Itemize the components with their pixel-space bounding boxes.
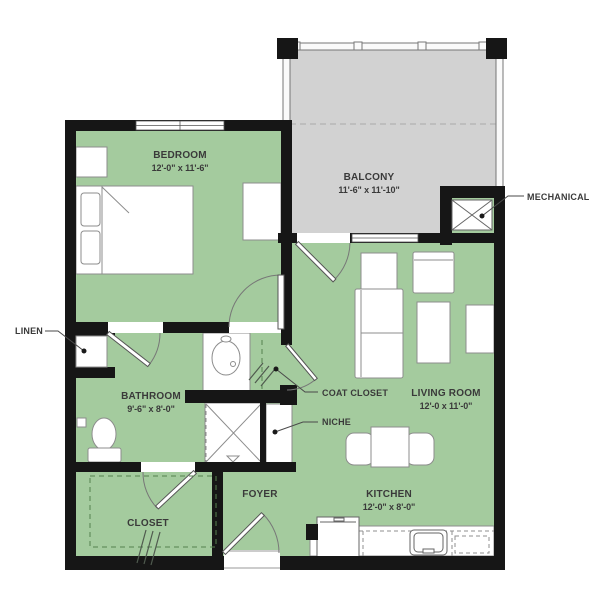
living-room-dims: 12'-0 x 11'-0": [420, 401, 473, 411]
coat-closet-callout-label: COAT CLOSET: [322, 388, 388, 398]
balcony-dims: 11'-6" x 11'-10": [338, 185, 399, 195]
leader-dot: [480, 214, 485, 219]
range-symbol: [317, 517, 359, 558]
niche-shelf-symbol: [266, 404, 292, 463]
rail-post-icon: [418, 42, 426, 50]
balcony-label: BALCONY: [344, 172, 395, 183]
sofa-symbol: [355, 289, 403, 378]
living-room-label: LIVING ROOM: [411, 388, 480, 399]
faucet-icon: [221, 336, 231, 342]
tp-holder-icon: [77, 418, 86, 427]
balcony-corner-post: [486, 38, 507, 59]
media-console-symbol: [466, 305, 494, 353]
shower-symbol: [205, 403, 262, 463]
balcony-railing-top: [297, 43, 487, 50]
wall-segment: [440, 186, 452, 245]
bed-symbol: [76, 186, 193, 274]
floor-plan-drawing: BEDROOM 12'-0" x 11'-6" BALCONY 11'-6" x…: [0, 0, 600, 606]
kitchen-label: KITCHEN: [366, 489, 412, 500]
chair-icon: [346, 433, 374, 465]
door-opening: [297, 233, 350, 243]
bathroom-label: BATHROOM: [121, 391, 181, 402]
drain-icon: [231, 362, 236, 367]
rail-post-icon: [354, 42, 362, 50]
leader-dot: [273, 430, 278, 435]
pillow-icon: [81, 231, 100, 264]
wall-segment: [185, 390, 296, 403]
bedroom-window: [136, 121, 224, 130]
balcony-sliding-door: [352, 234, 418, 242]
kitchen-dims: 12'-0" x 8'-0": [363, 502, 415, 512]
mechanical-equipment-symbol: [452, 200, 492, 230]
sink-symbol: [410, 530, 447, 555]
wall-segment: [280, 385, 297, 405]
foyer-label: FOYER: [242, 489, 278, 500]
linen-closet-box: [76, 336, 107, 367]
bedroom-dims: 12'-0" x 11'-6": [152, 163, 209, 173]
side-table-symbol: [361, 253, 397, 289]
linen-callout-label: LINEN: [15, 326, 43, 336]
dresser-symbol: [243, 183, 281, 240]
balcony-corner-post: [277, 38, 298, 59]
wall-segment: [212, 472, 223, 559]
wall-segment: [65, 120, 76, 570]
leader-dot: [82, 349, 87, 354]
balcony-railing-right: [496, 58, 503, 188]
nightstand-symbol: [76, 147, 107, 177]
closet-label: CLOSET: [127, 518, 169, 529]
wall-segment: [65, 556, 505, 570]
armchair-symbol: [413, 252, 454, 293]
mechanical-callout-label: MECHANICAL: [527, 192, 590, 202]
bedroom-label: BEDROOM: [153, 150, 207, 161]
vanity-symbol: [203, 333, 250, 391]
bathroom-dims: 9'-6" x 8'-0": [127, 404, 175, 414]
niche-callout-label: NICHE: [322, 417, 351, 427]
wall-segment: [260, 403, 266, 464]
dining-set-symbol: [346, 427, 434, 467]
pillow-icon: [81, 193, 100, 226]
wall-segment: [68, 367, 115, 378]
rail-post-icon: [479, 42, 487, 50]
door-opening: [108, 322, 163, 333]
floor-plan: BEDROOM 12'-0" x 11'-6" BALCONY 11'-6" x…: [0, 0, 600, 606]
door-opening: [141, 462, 195, 472]
wall-segment: [494, 186, 505, 570]
wall-segment: [306, 524, 318, 540]
leader-dot: [274, 367, 279, 372]
dining-table-icon: [371, 427, 409, 467]
coffee-table-symbol: [417, 302, 450, 363]
entry-opening: [224, 550, 280, 570]
chair-icon: [406, 433, 434, 465]
door-opening: [229, 322, 281, 333]
